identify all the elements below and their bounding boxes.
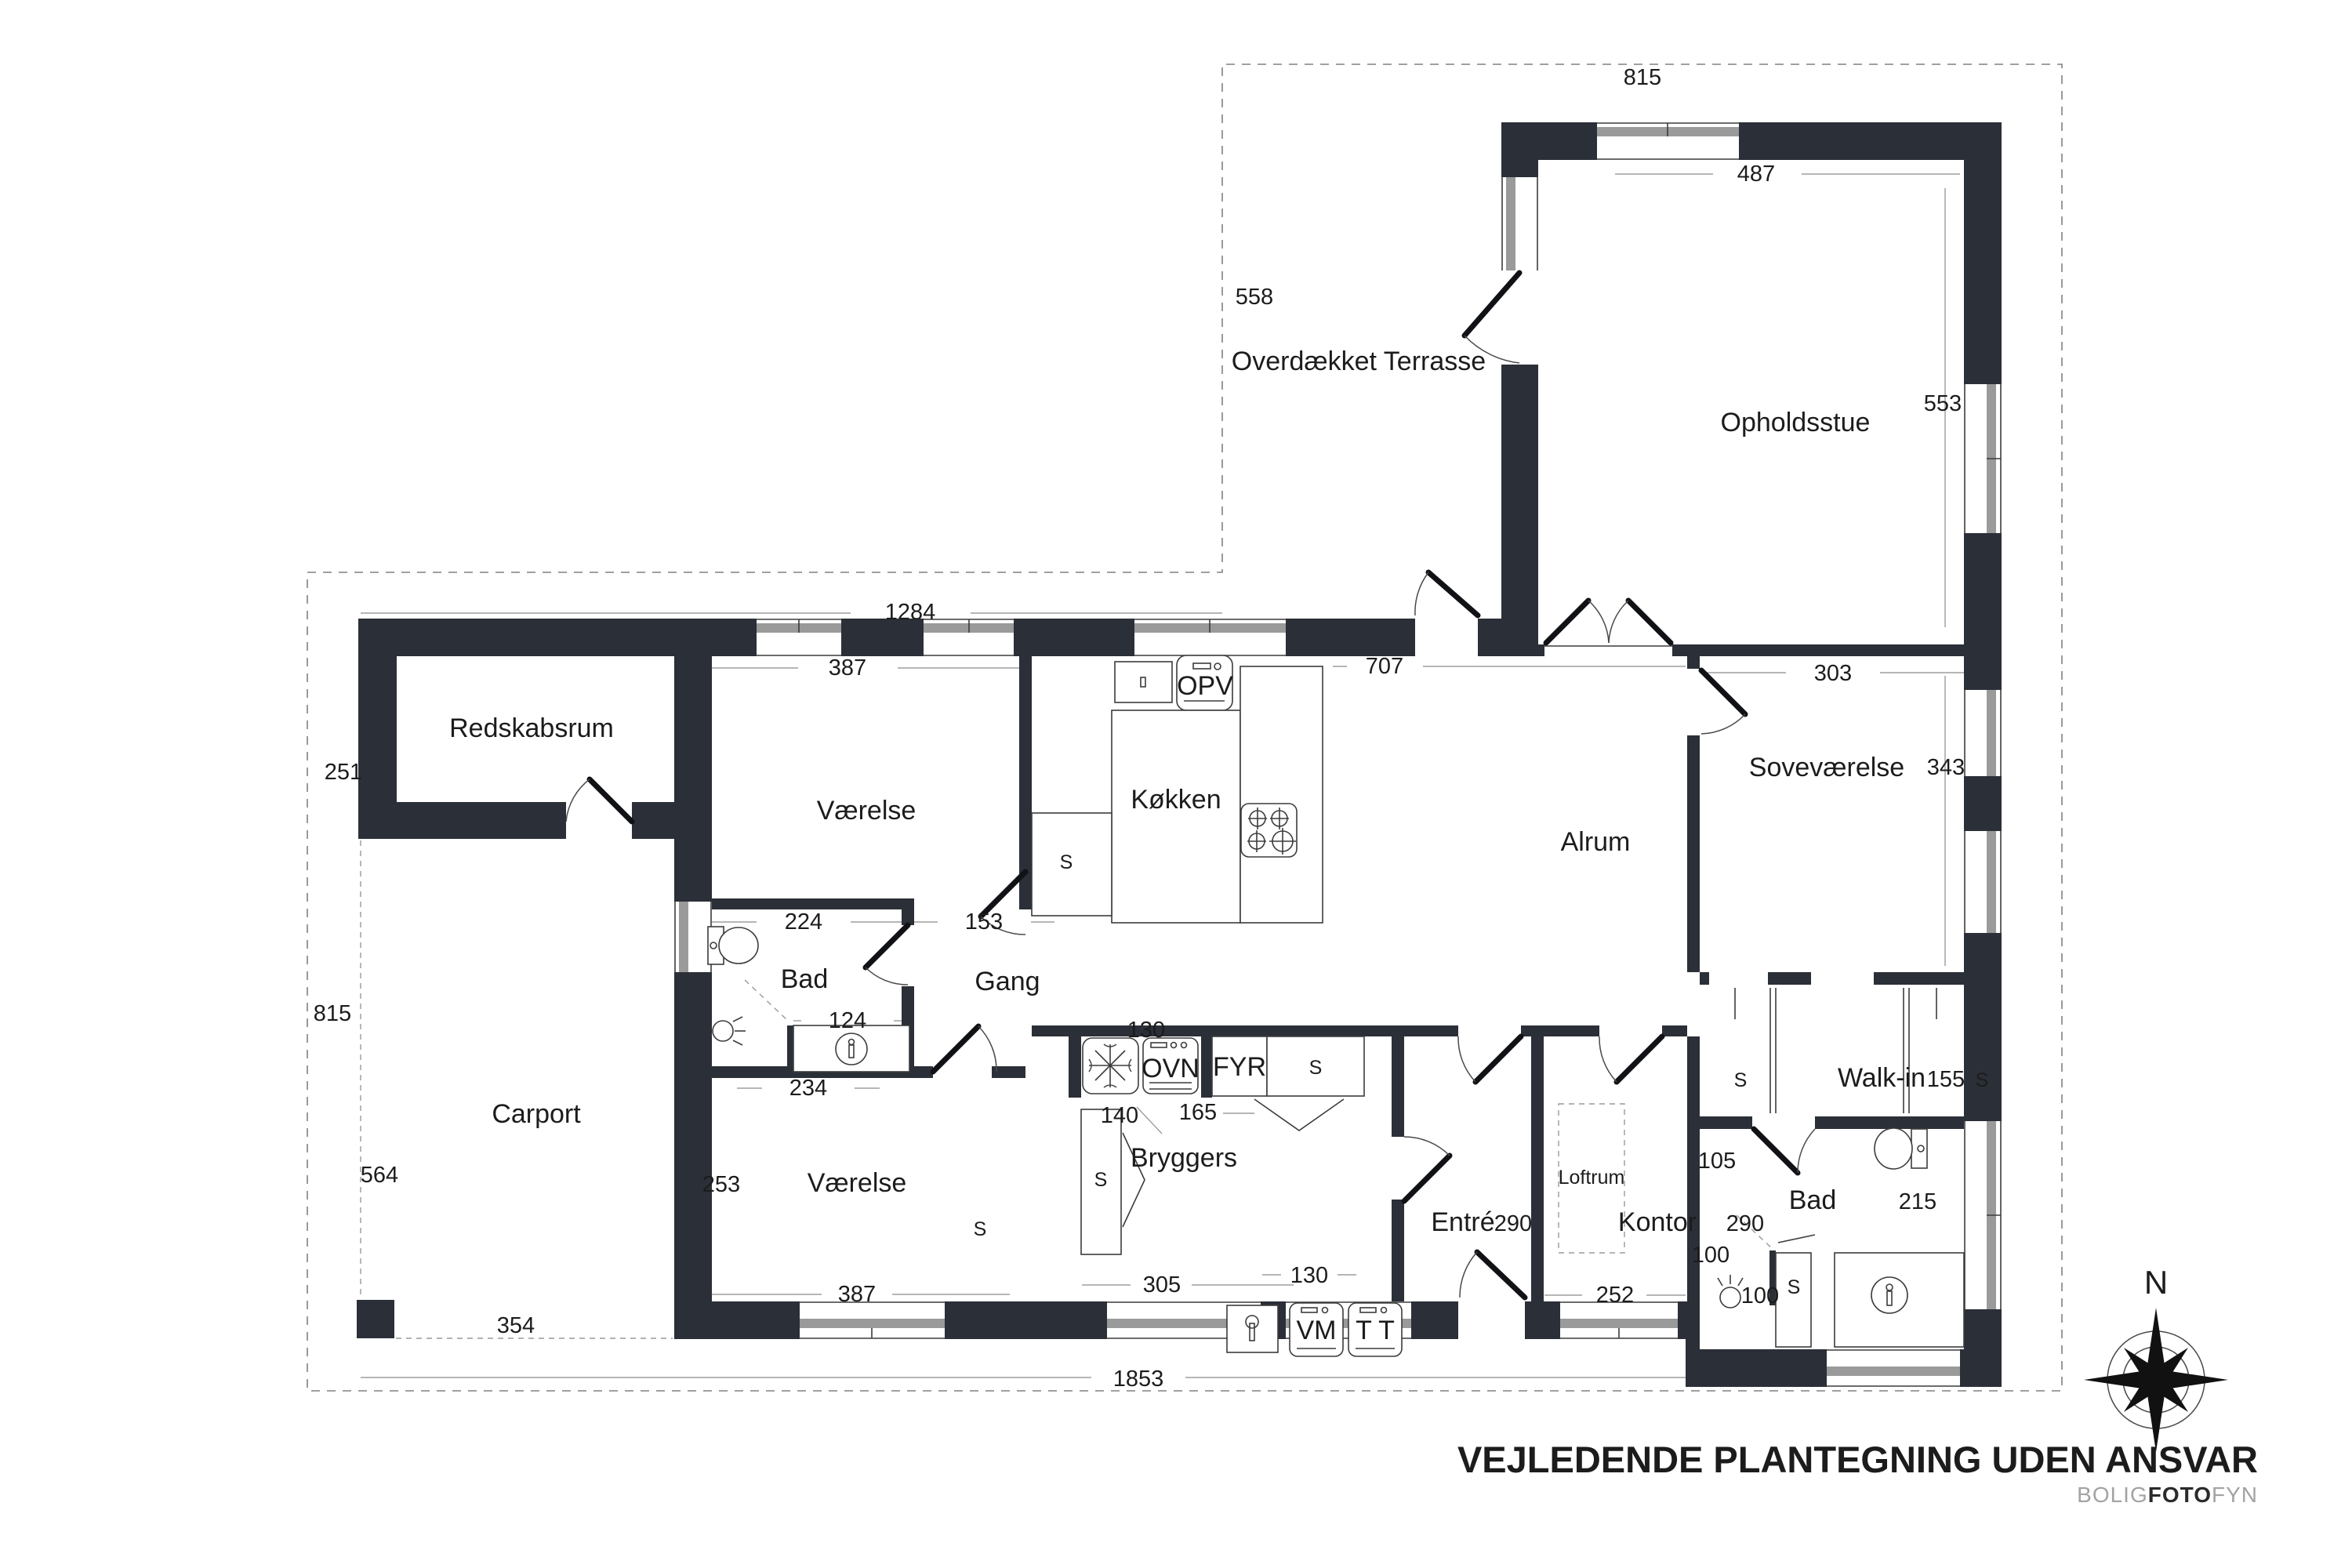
window: [1597, 122, 1739, 160]
brand-logo: BOLIGFOTOFYN: [2077, 1483, 2258, 1507]
disclaimer-title: VEJLEDENDE PLANTEGNING UDEN ANSVAR: [1457, 1439, 2258, 1480]
dim-140: 140: [1101, 1103, 1138, 1128]
room-vaerelse-lower: Værelse: [808, 1168, 907, 1198]
door-bad-lower: [1754, 1129, 1815, 1173]
room-alrum: Alrum: [1561, 827, 1631, 857]
room-bad-lower: Bad: [1789, 1185, 1837, 1215]
window: [1827, 1349, 1960, 1387]
carport-pillar: [357, 1300, 394, 1338]
label-opv: OPV: [1177, 671, 1233, 701]
dim-564: 564: [361, 1163, 398, 1188]
door-front: [1460, 1252, 1525, 1298]
kitchen-sink: [1115, 662, 1172, 702]
dim-155: 155: [1927, 1067, 1965, 1092]
label-fyr: FYR: [1213, 1052, 1266, 1082]
dim-253: 253: [702, 1172, 740, 1197]
freezer: [1083, 1038, 1138, 1094]
kitchen-island: [1240, 666, 1323, 923]
door-vaerelse-lower: [933, 1026, 996, 1072]
room-kontor: Kontor: [1618, 1207, 1697, 1237]
room-bad-upper: Bad: [781, 964, 829, 994]
dim-100-a: 100: [1692, 1243, 1730, 1268]
window: [1964, 690, 2002, 776]
room-terrasse: Overdækket Terrasse: [1232, 347, 1486, 376]
shower-screen: [1778, 1235, 1815, 1243]
dim-251: 251: [325, 760, 362, 785]
window: [800, 1301, 945, 1339]
dim-252: 252: [1596, 1283, 1634, 1308]
floorplan-drawing: Overdækket Terrasse Opholdsstue Redskabs…: [0, 0, 2352, 1568]
title-block: VEJLEDENDE PLANTEGNING UDEN ANSVAR BOLIG…: [1457, 1439, 2258, 1507]
compass-north-label: N: [2144, 1264, 2168, 1301]
dim-165: 165: [1179, 1100, 1217, 1125]
kitchen-counter: [1112, 710, 1240, 923]
dim-130-door: 130: [1290, 1263, 1328, 1288]
dim-343: 343: [1927, 755, 1965, 780]
compass-star-cardinal: [2084, 1308, 2228, 1452]
walkin-closets: [1735, 988, 1936, 1113]
dim-290-kontor: 290: [1726, 1211, 1764, 1236]
window: [924, 619, 1014, 656]
label-s-nook: S: [1309, 1057, 1323, 1079]
label-s-walkin-left: S: [1734, 1069, 1748, 1091]
label-tt: T T: [1356, 1316, 1395, 1345]
dim-153: 153: [965, 909, 1003, 935]
room-sovevaerelse: Soveværelse: [1749, 753, 1904, 782]
dim-215: 215: [1899, 1189, 1936, 1214]
brand-bolig: BOLIG: [2077, 1483, 2148, 1507]
compass: N: [2084, 1264, 2228, 1452]
door-kontor: [1599, 1036, 1662, 1082]
dim-303: 303: [1814, 661, 1852, 686]
window: [1964, 384, 2002, 533]
dim-1284: 1284: [885, 600, 936, 625]
room-redskabsrum: Redskabsrum: [449, 713, 614, 743]
window: [1964, 831, 2002, 933]
bad-closet: [1776, 1253, 1811, 1347]
room-entre: Entré: [1431, 1207, 1494, 1237]
dim-354: 354: [497, 1313, 535, 1338]
room-gang: Gang: [975, 967, 1040, 996]
dim-815-top: 815: [1624, 65, 1661, 90]
stove: [1241, 804, 1297, 857]
room-carport: Carport: [492, 1099, 581, 1129]
door-topwall: [1415, 572, 1478, 615]
dim-130-nook: 130: [1127, 1018, 1165, 1043]
dim-224: 224: [785, 909, 822, 935]
door-redskabsrum: [566, 779, 632, 822]
dim-487: 487: [1737, 162, 1775, 187]
floorplan-page: Overdækket Terrasse Opholdsstue Redskabs…: [0, 0, 2352, 1568]
label-s-walkin-right: S: [1976, 1069, 1989, 1091]
bifold-fyr-closet: [1254, 1099, 1344, 1131]
dim-558: 558: [1236, 285, 1273, 310]
door-bad-upper: [866, 925, 908, 985]
window: [757, 619, 841, 656]
room-koekken: Køkken: [1131, 785, 1221, 815]
label-s-vaerelse: S: [974, 1218, 987, 1240]
label-ovn: OVN: [1142, 1054, 1200, 1083]
dim-290-entre: 290: [1494, 1211, 1532, 1236]
door-entre: [1458, 1036, 1521, 1082]
label-s-bad: S: [1788, 1276, 1801, 1298]
dim-100-b: 100: [1741, 1283, 1779, 1308]
room-vaerelse-upper: Værelse: [817, 796, 916, 826]
brand-fyn: FYN: [2212, 1483, 2258, 1507]
lamp-lower: [1718, 1275, 1743, 1308]
window: [1964, 1121, 2002, 1309]
label-s-bryggers: S: [1094, 1169, 1108, 1191]
label-vm: VM: [1297, 1316, 1337, 1345]
dim-707: 707: [1366, 654, 1403, 679]
window: [674, 902, 712, 972]
dim-1853: 1853: [1113, 1367, 1164, 1392]
double-door-alrum: [1546, 601, 1671, 643]
brand-foto: FOTO: [2148, 1483, 2212, 1507]
window: [1501, 177, 1538, 270]
door-bryggers: [1404, 1137, 1450, 1201]
door-sovevaerelse: [1701, 670, 1745, 734]
lamp-upper: [713, 1017, 746, 1045]
dim-815-left: 815: [314, 1001, 351, 1026]
vanity-lower: [1835, 1253, 1964, 1347]
window: [1134, 619, 1286, 656]
dim-305: 305: [1143, 1272, 1181, 1298]
dim-124: 124: [829, 1008, 866, 1033]
dim-234: 234: [789, 1076, 827, 1101]
toilet-upper: [708, 927, 758, 964]
room-walkin: Walk-in: [1838, 1063, 1926, 1093]
dim-105: 105: [1698, 1149, 1736, 1174]
room-opholdsstue: Opholdsstue: [1721, 408, 1871, 437]
laundry-sink: [1227, 1305, 1278, 1352]
dim-553: 553: [1924, 391, 1962, 416]
room-loftrum: Loftrum: [1559, 1167, 1625, 1189]
dim-387-bottom: 387: [838, 1282, 876, 1307]
toilet-lower: [1875, 1128, 1927, 1169]
label-s-kitchen: S: [1060, 851, 1073, 873]
dim-387-top: 387: [829, 655, 866, 681]
room-bryggers: Bryggers: [1131, 1143, 1237, 1173]
